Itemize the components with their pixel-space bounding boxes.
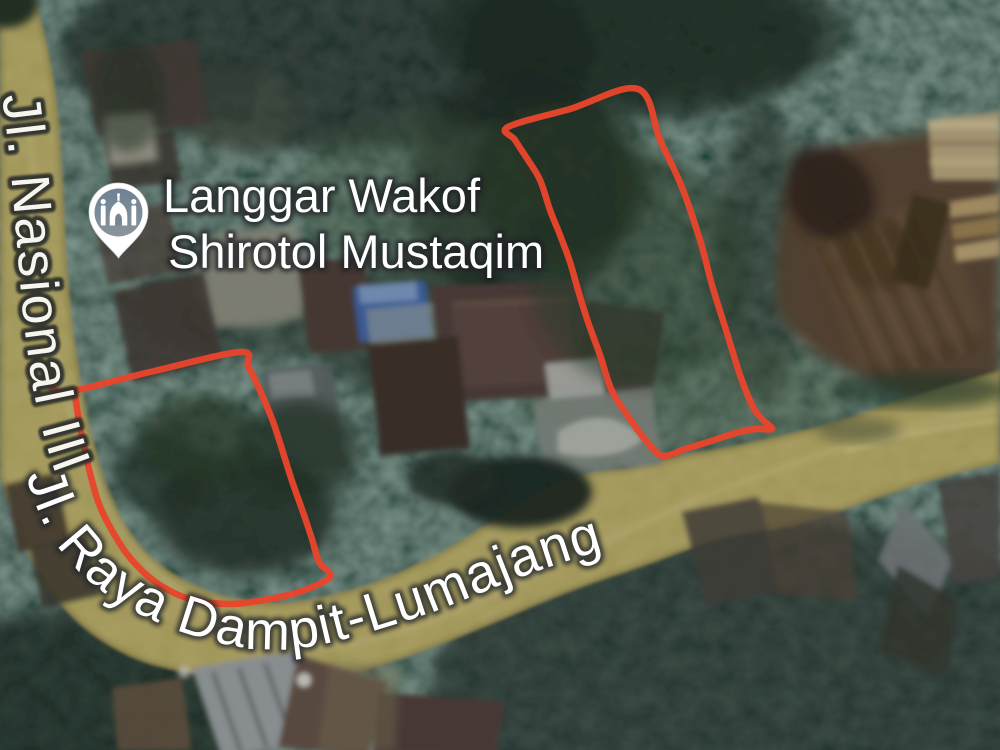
- svg-text:Langgar Wakof: Langgar Wakof: [163, 169, 481, 222]
- svg-text:Shirotol Mustaqim: Shirotol Mustaqim: [168, 225, 544, 278]
